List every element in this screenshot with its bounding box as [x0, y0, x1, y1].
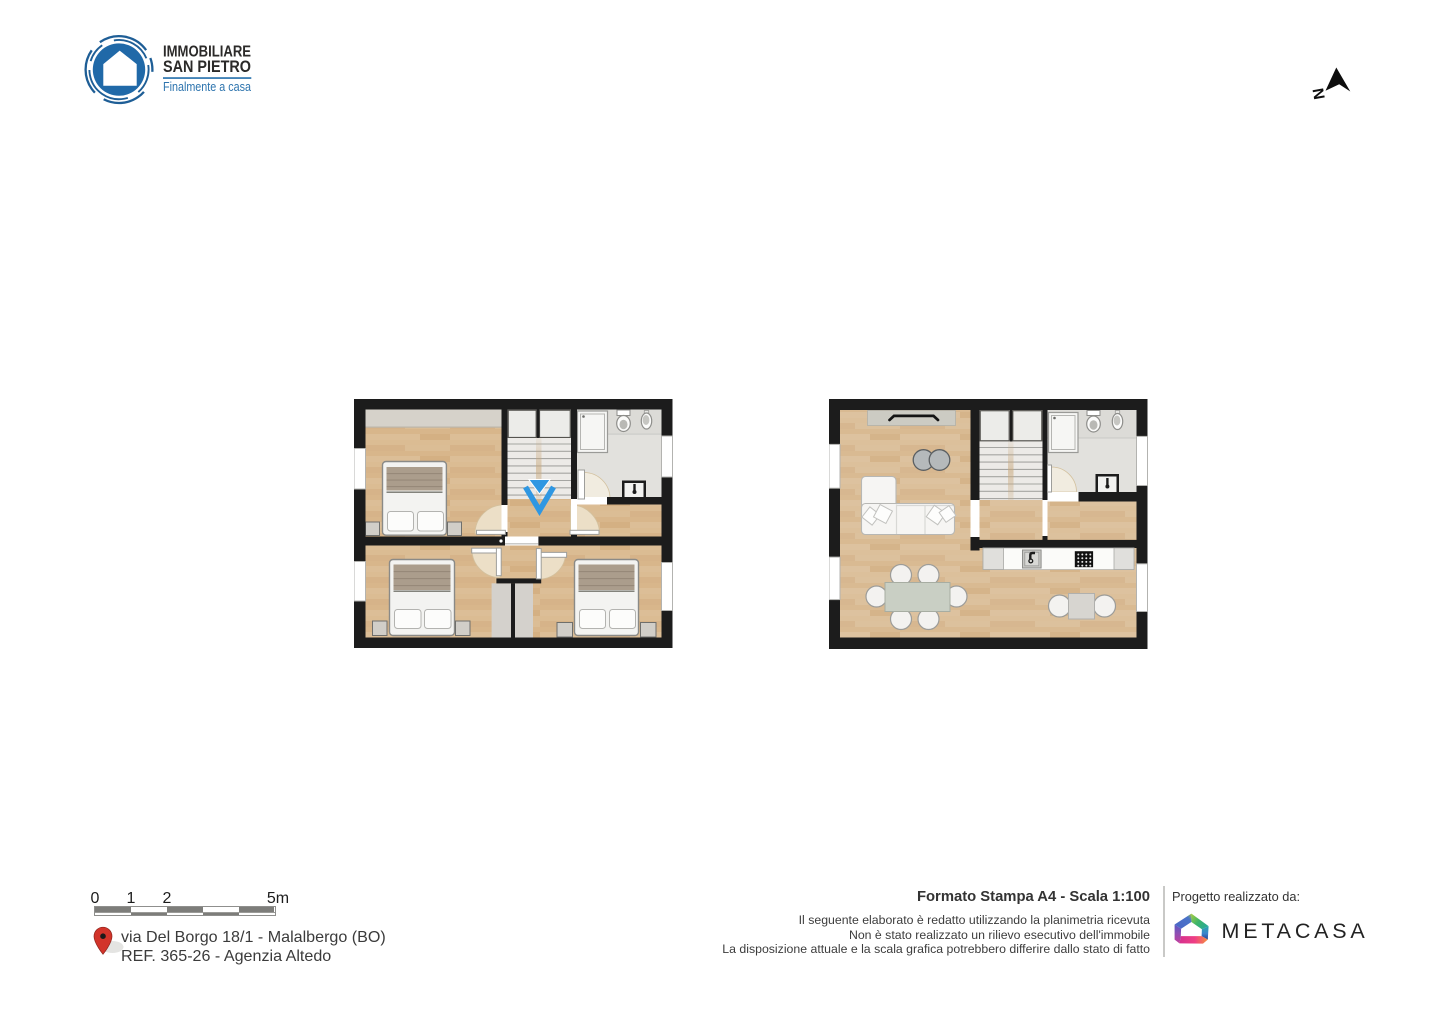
svg-text:N: N — [1310, 87, 1329, 101]
svg-text:SAN PIETRO: SAN PIETRO — [163, 58, 251, 76]
svg-text:Finalmente a casa: Finalmente a casa — [163, 79, 252, 94]
